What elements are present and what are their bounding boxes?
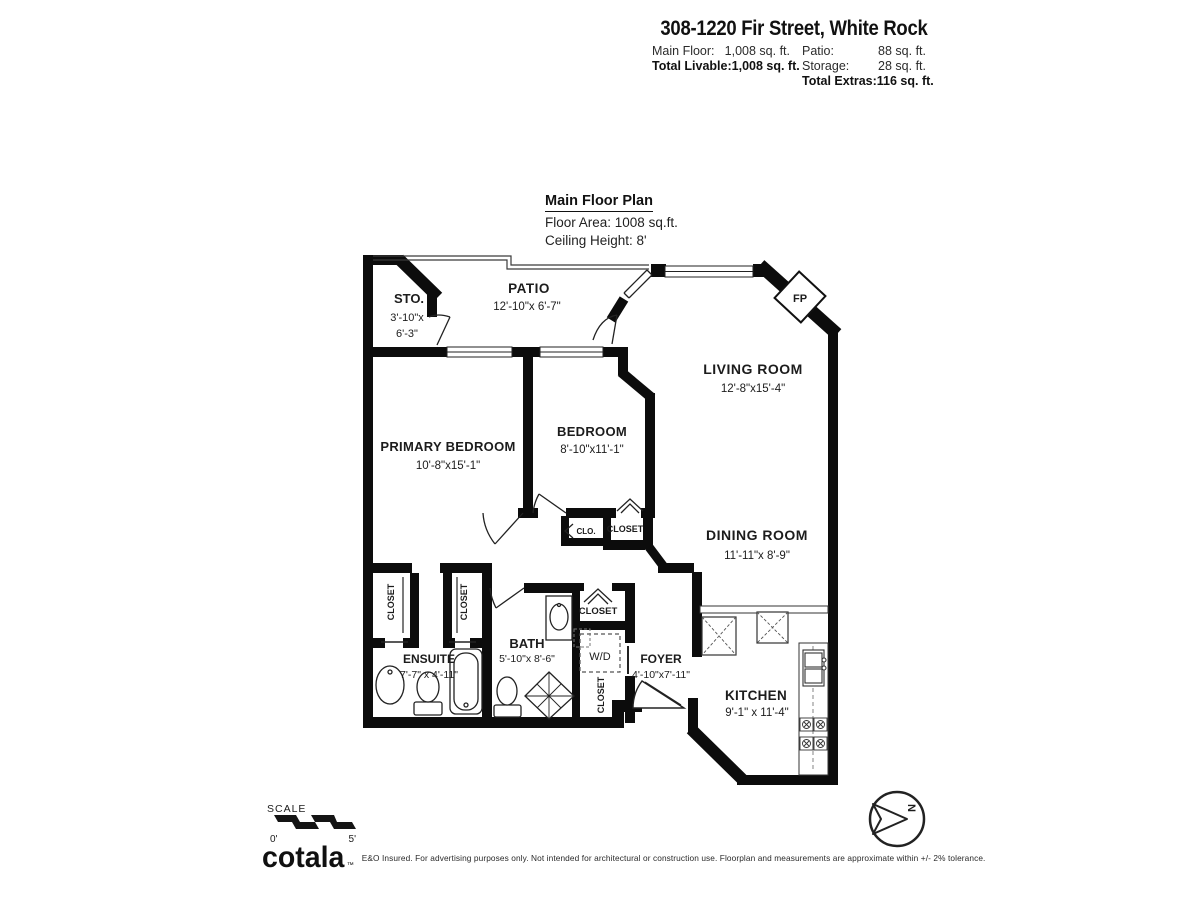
window (665, 266, 753, 277)
kitchen-sink (803, 650, 826, 686)
floorplan-page: 308-1220 Fir Street, White Rock Main Flo… (0, 0, 1200, 900)
room-label-kitchen: KITCHEN (725, 688, 787, 703)
corner-shower (525, 672, 574, 719)
room-label-bedroom: BEDROOM (557, 424, 627, 439)
north-arrow-icon (873, 804, 907, 834)
fireplace-label: FP (793, 293, 807, 305)
closet-label-hall: CLOSET (607, 524, 644, 534)
window (540, 347, 603, 357)
closet-bifold-door (617, 499, 643, 513)
floorplan-svg: STO. 3'-10"x 6'-3" PATIO 12'-10"x 6'-7" … (0, 0, 1200, 900)
room-dims-dining-room: 11'-11"x 8'-9" (724, 550, 790, 562)
window-diagonal (624, 270, 652, 298)
room-label-living-room: LIVING ROOM (703, 361, 803, 377)
scale-label: SCALE (267, 803, 306, 815)
disclaimer-text: E&O Insured. For advertising purposes on… (362, 853, 986, 863)
room-dims-ensuite: 7'-7" x 4'-11" (400, 669, 458, 681)
washer-dryer-label: W/D (589, 651, 610, 663)
north-compass: N (870, 792, 924, 846)
room-label-foyer: FOYER (640, 652, 682, 666)
room-dims-bedroom: 8'-10"x11'-1" (560, 444, 624, 456)
room-dims-kitchen: 9'-1" x 11'-4" (725, 707, 788, 719)
primary-bedroom-door (483, 513, 523, 544)
north-label: N (905, 804, 917, 812)
closet-label-left-2: CLOSET (459, 583, 469, 620)
closet-label-bottom: CLOSET (596, 676, 606, 713)
room-dims-living-room: 12'-8"x15'-4" (721, 383, 785, 395)
room-label-bath: BATH (509, 636, 544, 651)
room-dims-primary-bedroom: 10'-8"x15'-1" (416, 460, 480, 472)
room-label-ensuite: ENSUITE (403, 652, 455, 666)
room-dims-foyer: 4'-10"x7'-11" (632, 669, 690, 681)
room-label-primary-bedroom: PRIMARY BEDROOM (380, 439, 515, 454)
room-dims-storage-2: 6'-3" (396, 328, 418, 340)
bath-vanity-sink (546, 596, 572, 640)
scale-blocks (274, 815, 356, 829)
bath-door (490, 588, 524, 608)
hall-closet-bifold-door (584, 589, 612, 604)
room-label-patio: PATIO (508, 281, 550, 296)
room-label-dining-room: DINING ROOM (706, 527, 808, 543)
footer: cotala ™ E&O Insured. For advertising pu… (262, 843, 962, 873)
scale-bar: SCALE 0' 5' (267, 803, 356, 845)
closet-label-left-1: CLOSET (386, 583, 396, 620)
bath-toilet (494, 677, 521, 717)
room-dims-storage-1: 3'-10"x (390, 312, 424, 324)
entry-door (633, 681, 684, 708)
closet-label-top: CLOSET (579, 606, 618, 617)
brand-logo: cotala (262, 843, 344, 873)
room-dims-bath: 5'-10"x 8'-6" (499, 653, 555, 665)
room-dims-patio: 12'-10"x 6'-7" (493, 301, 561, 313)
storage-door (429, 315, 450, 345)
brand-trademark: ™ (347, 862, 354, 869)
room-label-storage: STO. (394, 291, 424, 306)
window (447, 347, 512, 357)
clo-label: CLO. (576, 527, 595, 536)
